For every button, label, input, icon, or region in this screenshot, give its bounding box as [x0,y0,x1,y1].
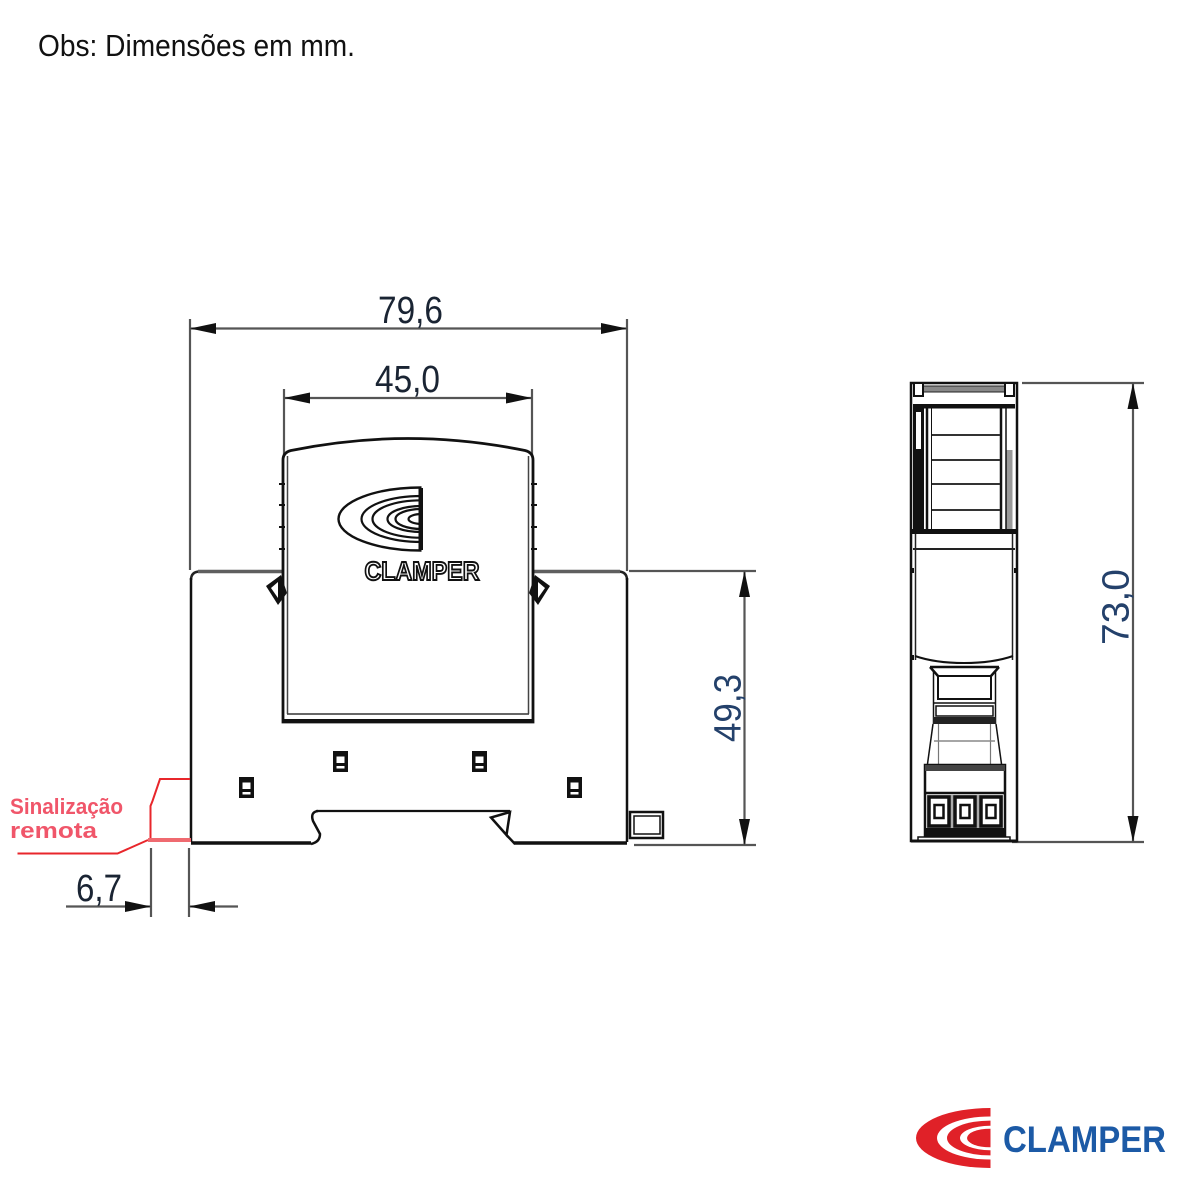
svg-text:6,7: 6,7 [76,868,122,910]
svg-text:remota: remota [10,818,98,843]
svg-text:Obs: Dimensões em mm.: Obs: Dimensões em mm. [38,28,355,63]
svg-text:73,0: 73,0 [1096,569,1138,645]
svg-text:Sinalização: Sinalização [10,794,123,819]
svg-text:49,3: 49,3 [708,674,750,742]
svg-text:45,0: 45,0 [375,359,440,401]
svg-text:CLAMPER: CLAMPER [365,556,480,586]
svg-text:CLAMPER: CLAMPER [1003,1119,1166,1160]
svg-text:79,6: 79,6 [378,290,443,332]
